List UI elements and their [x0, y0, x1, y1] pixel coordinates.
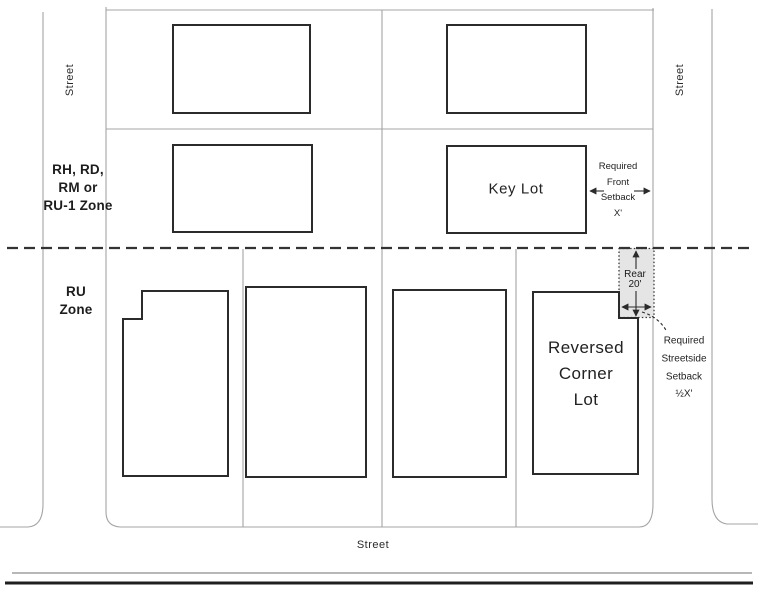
- lower-zone-label: RU Zone: [59, 283, 92, 319]
- streetside-setback-annotation-line: Streetside: [661, 350, 706, 368]
- front-setback-annotation-line: Required: [599, 159, 638, 175]
- reversed-corner-lot-label-line: Reversed: [548, 335, 624, 361]
- zoning-diagram: Street Street Street RH, RD, RM or RU-1 …: [0, 0, 758, 595]
- right-street-edge-line: [712, 9, 758, 524]
- upper-zone-label-line: RU-1 Zone: [43, 197, 112, 215]
- diagram-linework: [0, 0, 758, 595]
- rear-setback-annotation: Rear 20': [623, 269, 647, 291]
- reversed-corner-lot-label: Reversed Corner Lot: [548, 335, 624, 413]
- lower-zone-label-line: Zone: [59, 301, 92, 319]
- reversed-corner-lot-label-line: Corner: [548, 361, 624, 387]
- front-setback-annotation-line: X': [599, 206, 638, 222]
- rear-setback-annotation-line: 20': [624, 280, 646, 290]
- front-setback-annotation-line: Front: [599, 175, 638, 191]
- reversed-corner-lot-label-line: Lot: [548, 387, 624, 413]
- building-lower-1: [123, 291, 228, 476]
- block-left-lot-line: [106, 7, 120, 527]
- upper-zone-label-line: RM or: [43, 179, 112, 197]
- left-street-edge-line: [0, 12, 43, 527]
- streetside-setback-annotation: Required Streetside Setback ½X': [661, 332, 706, 403]
- building-upper-left-front: [173, 25, 310, 113]
- front-setback-annotation: Required Front Setback X': [599, 159, 638, 221]
- streetside-setback-annotation-line: Setback: [661, 368, 706, 386]
- streetside-setback-annotation-line: Required: [661, 332, 706, 350]
- upper-zone-label: RH, RD, RM or RU-1 Zone: [43, 161, 112, 215]
- lower-zone-label-line: RU: [59, 283, 92, 301]
- streetside-setback-annotation-line: ½X': [661, 386, 706, 404]
- street-label-bottom: Street: [357, 539, 389, 551]
- building-upper-left-rear: [173, 145, 312, 232]
- front-setback-annotation-line: Setback: [599, 190, 638, 206]
- building-upper-right-front: [447, 25, 586, 113]
- street-label-right: Street: [674, 64, 686, 96]
- upper-zone-label-line: RH, RD,: [43, 161, 112, 179]
- street-label-left: Street: [64, 64, 76, 96]
- building-lower-2: [246, 287, 366, 477]
- building-lower-3: [393, 290, 506, 477]
- key-lot-label: Key Lot: [488, 181, 543, 198]
